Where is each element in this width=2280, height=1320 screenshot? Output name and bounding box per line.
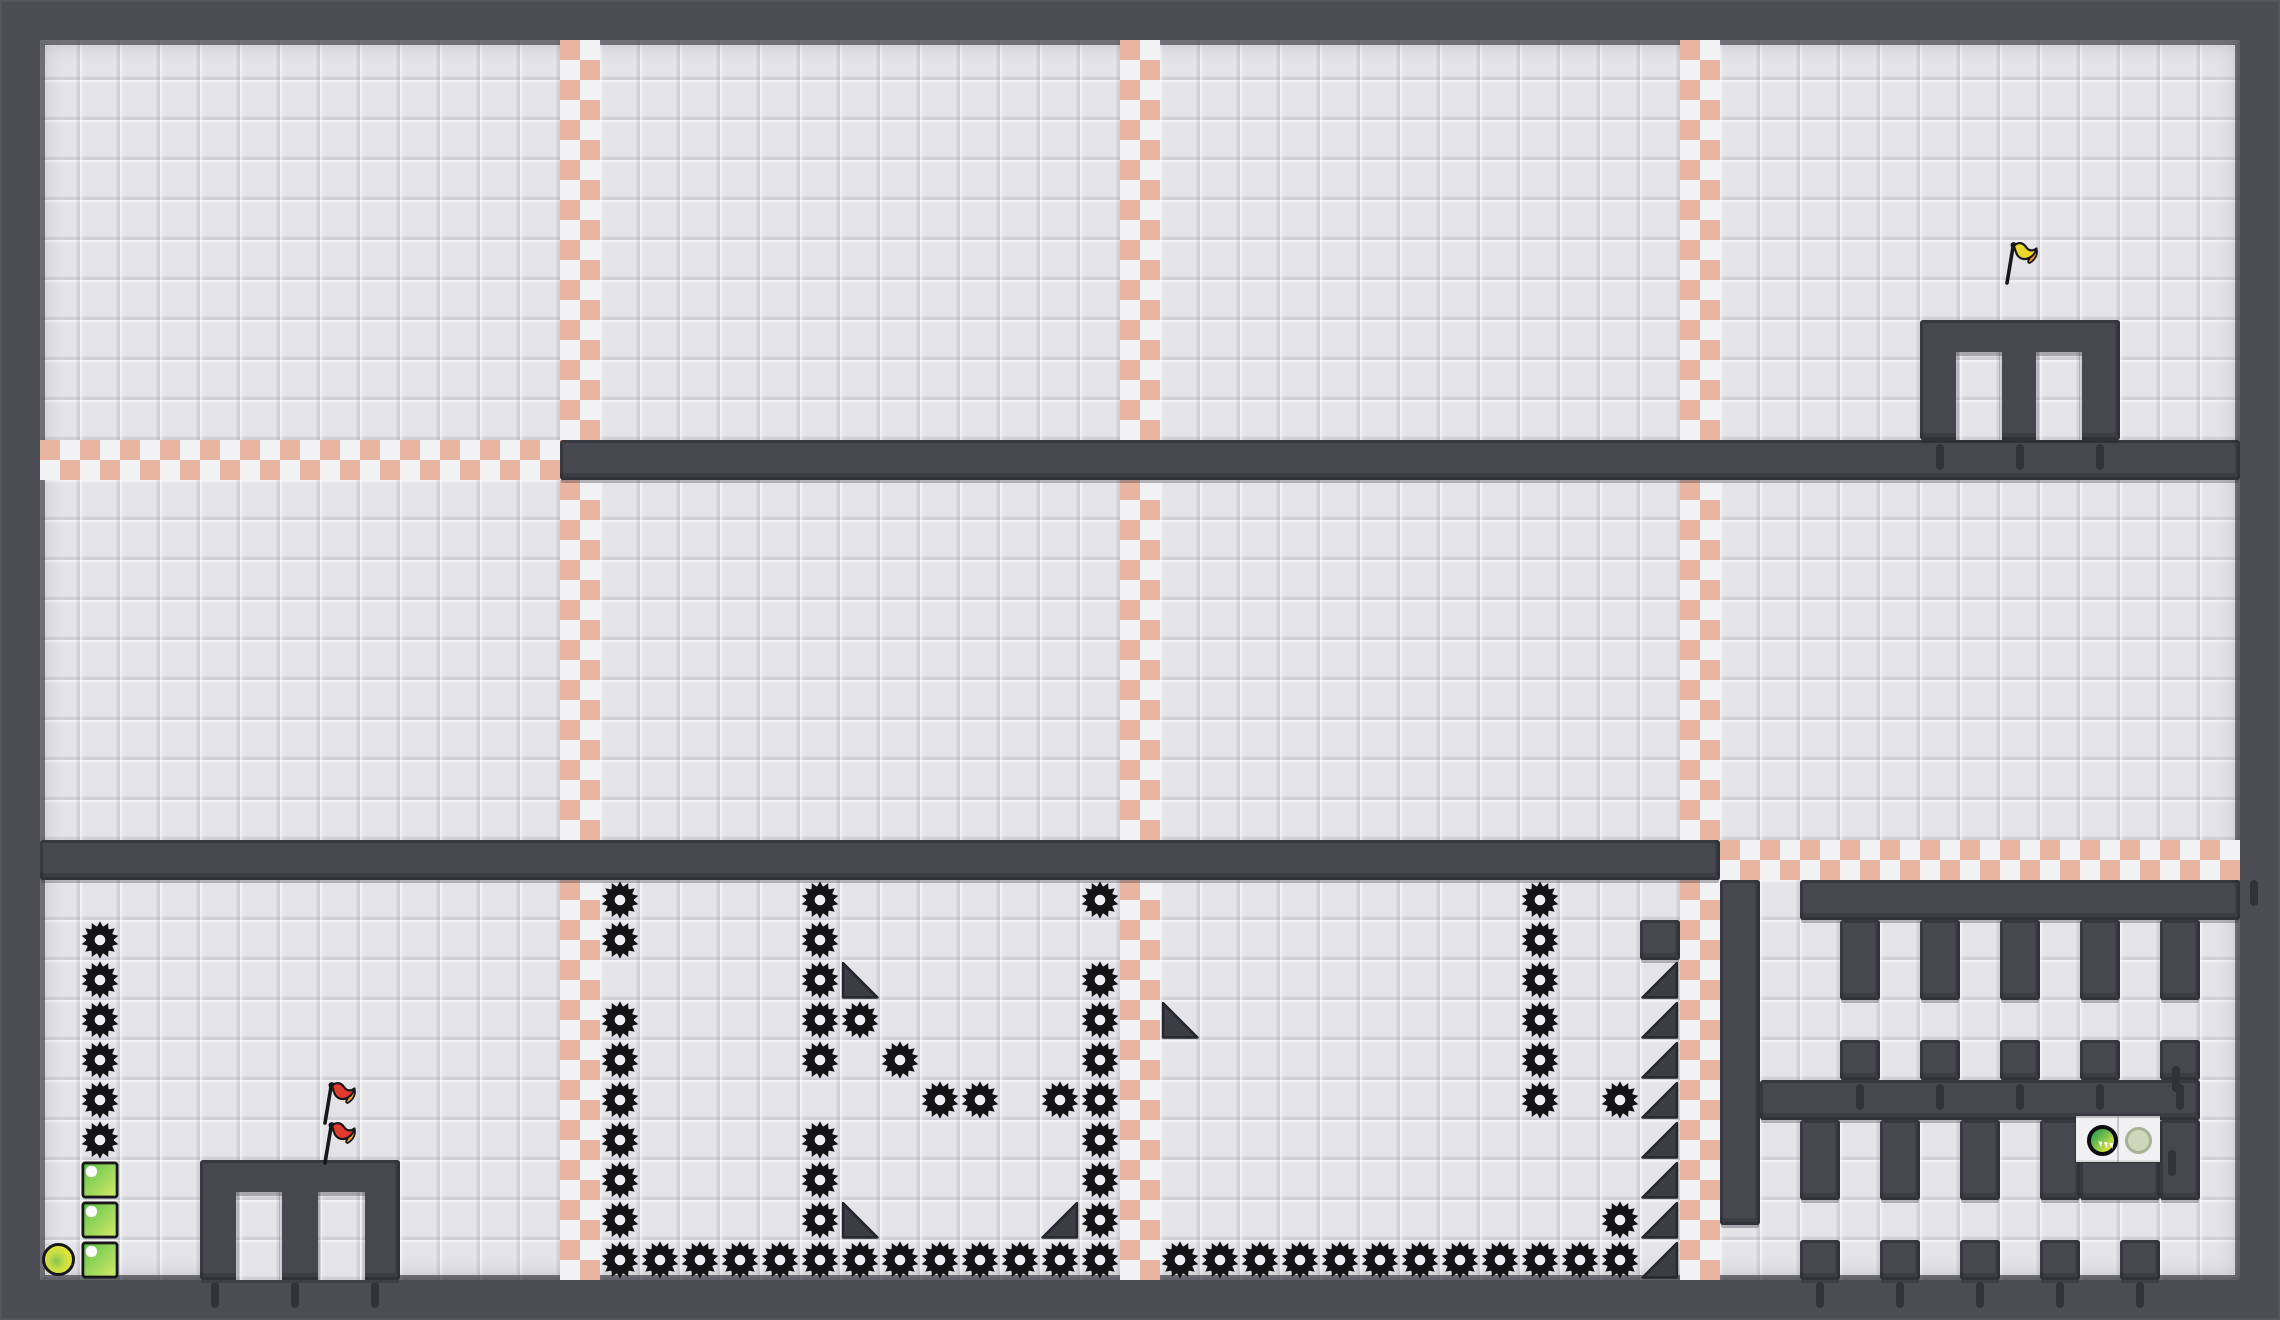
saw-blade-hazard <box>800 1160 840 1200</box>
saw-blade-hazard <box>1520 1000 1560 1040</box>
wall-block <box>1880 1240 1920 1280</box>
spike-ramp-icon <box>1640 1120 1680 1160</box>
saw-blade-hazard <box>1360 1240 1400 1280</box>
flag-icon <box>1996 238 2040 286</box>
saw-blade-hazard <box>800 1200 840 1240</box>
wall-tick-mark <box>1936 444 1944 470</box>
saw-blade-icon <box>600 920 640 960</box>
spike-hazard <box>840 1200 880 1240</box>
saw-blade-icon <box>920 1080 960 1120</box>
saw-blade-hazard <box>1080 1080 1120 1120</box>
saw-blade-icon <box>80 920 120 960</box>
spike-ramp-icon <box>1640 1040 1680 1080</box>
saw-blade-hazard <box>600 1240 640 1280</box>
pressure-button-active <box>2087 1125 2118 1156</box>
saw-blade-hazard <box>1080 1000 1120 1040</box>
wall-block <box>2000 1040 2040 1080</box>
saw-blade-icon <box>800 880 840 920</box>
saw-blade-hazard <box>960 1080 1000 1120</box>
saw-blade-icon <box>1600 1240 1640 1280</box>
wall-tick-mark <box>2168 1150 2176 1176</box>
saw-blade-icon <box>80 1120 120 1160</box>
saw-blade-hazard <box>800 880 840 920</box>
saw-blade-icon <box>800 1000 840 1040</box>
saw-blade-hazard <box>720 1240 760 1280</box>
spike-ramp-icon <box>1640 1240 1680 1280</box>
saw-blade-icon <box>800 1120 840 1160</box>
wall-block <box>200 1160 400 1280</box>
wall-block <box>2080 920 2120 1000</box>
saw-blade-icon <box>1560 1240 1600 1280</box>
crate-icon <box>81 1201 119 1239</box>
checkpoint-flag-red <box>314 1118 358 1166</box>
saw-blade-icon <box>880 1240 920 1280</box>
saw-blade-hazard <box>600 1040 640 1080</box>
saw-blade-hazard <box>1080 880 1120 920</box>
wall-block <box>1760 1080 2200 1120</box>
spike-ramp-icon <box>1640 1080 1680 1120</box>
wall-block <box>1960 1120 2000 1200</box>
saw-blade-icon <box>1520 1000 1560 1040</box>
saw-blade-icon <box>1080 1000 1120 1040</box>
crate-block <box>81 1241 119 1279</box>
saw-blade-hazard <box>1520 880 1560 920</box>
saw-blade-hazard <box>1600 1080 1640 1120</box>
wall-tick-mark <box>2096 444 2104 470</box>
goal-flag-yellow <box>1996 238 2040 286</box>
saw-blade-hazard <box>1320 1240 1360 1280</box>
saw-blade-hazard <box>800 960 840 1000</box>
checkpoint-stripe-vertical <box>1120 40 1160 1280</box>
saw-blade-icon <box>1080 1080 1120 1120</box>
wall-tick-mark <box>1856 1084 1864 1110</box>
spike-hazard <box>840 960 880 1000</box>
saw-blade-hazard <box>800 1000 840 1040</box>
saw-blade-hazard <box>800 1040 840 1080</box>
wall-tick-mark <box>2016 1084 2024 1110</box>
saw-blade-icon <box>800 960 840 1000</box>
button-marks-icon <box>2091 1129 2122 1160</box>
saw-blade-hazard <box>1520 960 1560 1000</box>
saw-blade-icon <box>800 1240 840 1280</box>
crate-icon <box>81 1161 119 1199</box>
saw-blade-hazard <box>600 1000 640 1040</box>
saw-blade-hazard <box>840 1240 880 1280</box>
wall-block <box>1920 920 1960 1000</box>
wall-tick-mark <box>2096 1084 2104 1110</box>
saw-blade-icon <box>600 880 640 920</box>
spike-hazard <box>1640 1040 1680 1080</box>
wall-block <box>560 440 2240 480</box>
crate-icon <box>81 1241 119 1279</box>
wall-tick-mark <box>1816 1282 1824 1308</box>
spike-hazard <box>1160 1000 1200 1040</box>
saw-blade-icon <box>680 1240 720 1280</box>
saw-blade-icon <box>1080 1200 1120 1240</box>
saw-blade-icon <box>1440 1240 1480 1280</box>
saw-blade-icon <box>80 1080 120 1120</box>
wall-block <box>2160 920 2200 1000</box>
saw-blade-hazard <box>880 1240 920 1280</box>
saw-blade-icon <box>800 1200 840 1240</box>
saw-blade-hazard <box>760 1240 800 1280</box>
saw-blade-icon <box>1080 1120 1120 1160</box>
saw-blade-icon <box>1040 1240 1080 1280</box>
wall-block <box>1800 880 2240 920</box>
saw-blade-hazard <box>600 1080 640 1120</box>
saw-blade-icon <box>1000 1240 1040 1280</box>
saw-blade-hazard <box>1080 1240 1120 1280</box>
saw-blade-hazard <box>1600 1200 1640 1240</box>
saw-blade-hazard <box>1000 1240 1040 1280</box>
spike-ramp-icon <box>1640 1200 1680 1240</box>
saw-blade-hazard <box>1080 1160 1120 1200</box>
door-opening <box>2036 352 2082 440</box>
saw-blade-icon <box>760 1240 800 1280</box>
saw-blade-icon <box>1280 1240 1320 1280</box>
wall-block <box>2040 1240 2080 1280</box>
saw-blade-hazard <box>1520 1240 1560 1280</box>
saw-blade-hazard <box>920 1240 960 1280</box>
saw-blade-icon <box>1520 960 1560 1000</box>
saw-blade-icon <box>720 1240 760 1280</box>
saw-blade-icon <box>600 1200 640 1240</box>
saw-blade-icon <box>80 960 120 1000</box>
spike-hazard <box>1640 1200 1680 1240</box>
saw-blade-icon <box>800 1040 840 1080</box>
wall-block <box>1840 920 1880 1000</box>
spike-hazard <box>1640 960 1680 1000</box>
saw-blade-icon <box>1040 1080 1080 1120</box>
wall-block <box>1720 880 1760 1225</box>
wall-block <box>1920 320 2120 440</box>
crate-block <box>81 1201 119 1239</box>
wall-tick-mark <box>371 1282 379 1308</box>
saw-blade-hazard <box>1200 1240 1240 1280</box>
level-stage <box>0 0 2280 1320</box>
saw-blade-hazard <box>1560 1240 1600 1280</box>
saw-blade-icon <box>640 1240 680 1280</box>
spike-ramp-icon <box>1640 1160 1680 1200</box>
saw-blade-hazard <box>1520 1080 1560 1120</box>
saw-blade-icon <box>600 1040 640 1080</box>
saw-blade-icon <box>1600 1200 1640 1240</box>
saw-blade-icon <box>800 1160 840 1200</box>
saw-blade-hazard <box>80 1040 120 1080</box>
spike-ramp-icon <box>1040 1200 1080 1240</box>
wall-block <box>40 840 1720 880</box>
wall-block <box>1800 1240 1840 1280</box>
saw-blade-icon <box>840 1240 880 1280</box>
saw-blade-hazard <box>1280 1240 1320 1280</box>
checkpoint-stripe-vertical <box>560 40 600 1280</box>
wall-block <box>1880 1120 1920 1200</box>
saw-blade-hazard <box>1520 920 1560 960</box>
saw-blade-hazard <box>680 1240 720 1280</box>
saw-blade-hazard <box>80 960 120 1000</box>
spike-ramp-icon <box>1160 1000 1200 1040</box>
saw-blade-hazard <box>600 1200 640 1240</box>
saw-blade-hazard <box>800 1240 840 1280</box>
wall-tick-mark <box>1896 1282 1904 1308</box>
spike-hazard <box>1640 1080 1680 1120</box>
saw-blade-hazard <box>600 1120 640 1160</box>
door-opening <box>1956 352 2002 440</box>
wall-block <box>2080 1160 2160 1200</box>
wall-block <box>2160 1120 2200 1200</box>
saw-blade-icon <box>1520 880 1560 920</box>
saw-blade-icon <box>1600 1080 1640 1120</box>
saw-blade-icon <box>1320 1240 1360 1280</box>
spike-hazard <box>1640 1000 1680 1040</box>
saw-blade-icon <box>960 1080 1000 1120</box>
saw-blade-icon <box>600 1240 640 1280</box>
saw-blade-icon <box>1520 1240 1560 1280</box>
saw-blade-icon <box>600 1000 640 1040</box>
saw-blade-hazard <box>920 1080 960 1120</box>
saw-blade-hazard <box>840 1000 880 1040</box>
saw-blade-icon <box>1160 1240 1200 1280</box>
saw-blade-hazard <box>600 880 640 920</box>
saw-blade-icon <box>1080 1040 1120 1080</box>
saw-blade-icon <box>1240 1240 1280 1280</box>
wall-block <box>1920 1040 1960 1080</box>
saw-blade-icon <box>1080 1160 1120 1200</box>
saw-blade-hazard <box>1080 1040 1120 1080</box>
saw-blade-hazard <box>80 1120 120 1160</box>
player-ball <box>42 1243 75 1276</box>
wall-block <box>2040 1120 2080 1200</box>
saw-blade-hazard <box>960 1240 1000 1280</box>
button-panel <box>2076 1116 2160 1162</box>
saw-blade-icon <box>1200 1240 1240 1280</box>
saw-blade-hazard <box>80 1080 120 1120</box>
saw-blade-hazard <box>1520 1040 1560 1080</box>
saw-blade-hazard <box>80 920 120 960</box>
wall-block <box>1640 920 1680 960</box>
pressure-button-inactive <box>2125 1127 2152 1154</box>
wall-tick-mark <box>211 1282 219 1308</box>
spike-ramp-icon <box>1640 1000 1680 1040</box>
wall-tick-mark <box>1976 1282 1984 1308</box>
saw-blade-icon <box>1400 1240 1440 1280</box>
saw-blade-icon <box>1080 880 1120 920</box>
wall-block <box>1800 1120 1840 1200</box>
wall-block <box>1960 1240 2000 1280</box>
saw-blade-hazard <box>640 1240 680 1280</box>
saw-blade-hazard <box>1040 1240 1080 1280</box>
saw-blade-hazard <box>600 1160 640 1200</box>
spike-hazard <box>1040 1200 1080 1240</box>
saw-blade-hazard <box>1440 1240 1480 1280</box>
flag-icon <box>314 1118 358 1166</box>
saw-blade-icon <box>920 1240 960 1280</box>
checkpoint-stripe-horizontal <box>40 440 560 480</box>
saw-blade-hazard <box>1080 1200 1120 1240</box>
door-opening <box>236 1192 282 1280</box>
wall-block <box>2080 1040 2120 1080</box>
saw-blade-hazard <box>1240 1240 1280 1280</box>
spike-hazard <box>1640 1240 1680 1280</box>
saw-blade-icon <box>880 1040 920 1080</box>
crate-block <box>81 1161 119 1199</box>
saw-blade-hazard <box>1160 1240 1200 1280</box>
saw-blade-icon <box>1360 1240 1400 1280</box>
game-viewport[interactable] <box>0 0 2280 1320</box>
wall-tick-mark <box>2016 444 2024 470</box>
wall-block <box>2120 1240 2160 1280</box>
spike-hazard <box>1640 1160 1680 1200</box>
saw-blade-hazard <box>1480 1240 1520 1280</box>
saw-blade-icon <box>1480 1240 1520 1280</box>
wall-block <box>2160 1040 2200 1080</box>
checkpoint-stripe-horizontal <box>1720 840 2240 880</box>
saw-blade-icon <box>840 1000 880 1040</box>
saw-blade-hazard <box>800 920 840 960</box>
wall-tick-mark <box>291 1282 299 1308</box>
saw-blade-hazard <box>880 1040 920 1080</box>
wall-block <box>2000 920 2040 1000</box>
spike-ramp-icon <box>840 960 880 1000</box>
saw-blade-icon <box>1520 1080 1560 1120</box>
saw-blade-icon <box>1080 960 1120 1000</box>
saw-blade-hazard <box>1080 960 1120 1000</box>
saw-blade-hazard <box>1040 1080 1080 1120</box>
spike-ramp-icon <box>1640 960 1680 1000</box>
wall-tick-mark <box>2250 880 2258 906</box>
saw-blade-icon <box>600 1120 640 1160</box>
saw-blade-hazard <box>600 920 640 960</box>
wall-tick-mark <box>2172 1066 2180 1092</box>
saw-blade-icon <box>800 920 840 960</box>
saw-blade-icon <box>1520 1040 1560 1080</box>
saw-blade-icon <box>80 1040 120 1080</box>
saw-blade-icon <box>600 1080 640 1120</box>
checkpoint-stripe-vertical <box>1680 40 1720 1280</box>
wall-tick-mark <box>2136 1282 2144 1308</box>
spike-ramp-icon <box>840 1200 880 1240</box>
saw-blade-hazard <box>1600 1240 1640 1280</box>
saw-blade-icon <box>960 1240 1000 1280</box>
wall-block <box>1840 1040 1880 1080</box>
saw-blade-icon <box>1520 920 1560 960</box>
saw-blade-hazard <box>1080 1120 1120 1160</box>
spike-hazard <box>1640 1120 1680 1160</box>
saw-blade-icon <box>600 1160 640 1200</box>
wall-tick-mark <box>1936 1084 1944 1110</box>
saw-blade-hazard <box>1400 1240 1440 1280</box>
wall-tick-mark <box>2056 1282 2064 1308</box>
saw-blade-hazard <box>80 1000 120 1040</box>
saw-blade-icon <box>1080 1240 1120 1280</box>
saw-blade-icon <box>80 1000 120 1040</box>
saw-blade-hazard <box>800 1120 840 1160</box>
door-opening <box>318 1192 365 1280</box>
